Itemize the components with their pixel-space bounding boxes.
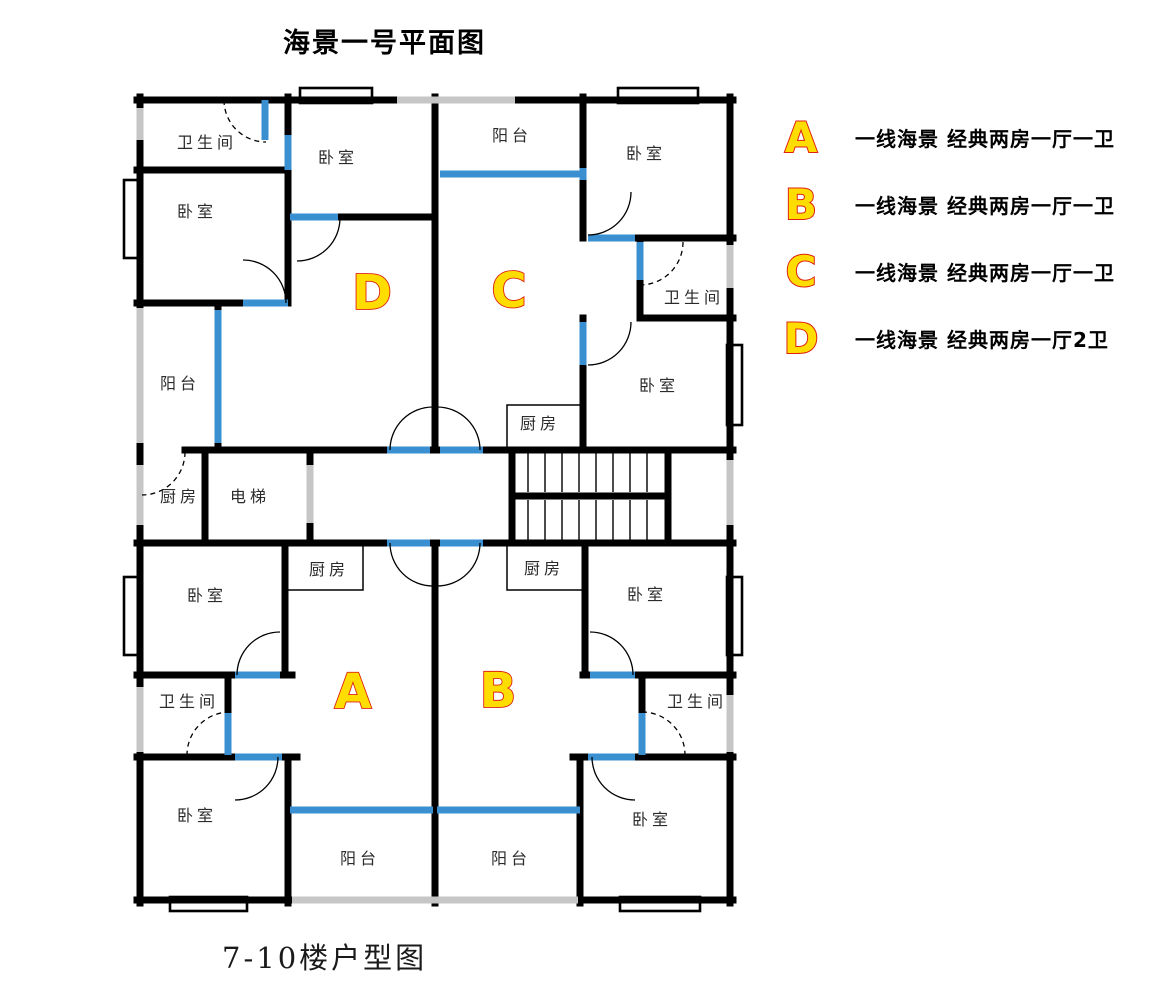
legend-letter-a: A: [785, 113, 818, 162]
door-arc: [437, 543, 480, 586]
legend-desc-d: 一线海景 经典两房一厅2卫: [855, 328, 1109, 352]
door-arc: [390, 407, 433, 450]
unit-letter-d: D: [352, 265, 392, 321]
door-arc: [437, 407, 480, 450]
legend-desc-a: 一线海景 经典两房一厅一卫: [855, 127, 1115, 151]
footer-caption: 7-10楼户型图: [222, 941, 427, 975]
room-label-d-bathroom: 卫生间: [177, 133, 237, 152]
room-label-a-bedroom-2: 卧室: [177, 806, 217, 825]
room-label-d-kitchen: 厨房: [160, 487, 200, 506]
room-label-c-balcony: 阳台: [492, 126, 532, 145]
room-label-b-bedroom-1: 卧室: [627, 585, 667, 604]
room-label-d-balcony: 阳台: [160, 374, 200, 393]
legend-letter-c: C: [786, 247, 817, 296]
room-label-elevator: 电梯: [230, 487, 270, 506]
door-arc: [588, 322, 631, 365]
floor-plan-page: 海景一号平面图: [0, 0, 1158, 992]
door-arc: [640, 242, 683, 285]
room-label-b-balcony: 阳台: [491, 849, 531, 868]
room-label-a-bedroom-1: 卧室: [187, 586, 227, 605]
room-label-c-bedroom-1: 卧室: [626, 144, 666, 163]
door-arc: [590, 632, 633, 675]
page-title: 海景一号平面图: [283, 28, 486, 59]
floor-plan-canvas: 海景一号平面图: [0, 0, 1158, 992]
room-label-b-bathroom: 卫生间: [667, 692, 727, 711]
room-label-a-bathroom: 卫生间: [159, 692, 219, 711]
unit-letter-b: B: [480, 663, 517, 719]
room-label-b-bedroom-2: 卧室: [632, 810, 672, 829]
room-label-d-bedroom-1: 卧室: [177, 202, 217, 221]
unit-letter-c: C: [491, 263, 526, 319]
room-label-b-kitchen: 厨房: [524, 559, 564, 578]
legend-desc-b: 一线海景 经典两房一厅一卫: [855, 194, 1115, 218]
door-arc: [237, 632, 280, 675]
unit-letters: A B C D: [334, 263, 526, 720]
door-arc: [390, 543, 433, 586]
door-arc: [187, 712, 230, 755]
unit-letter-a: A: [334, 664, 371, 720]
room-label-c-bathroom: 卫生间: [664, 288, 724, 307]
door-arc: [592, 757, 635, 800]
legend-letter-d: D: [784, 314, 819, 363]
legend: A 一线海景 经典两房一厅一卫 B 一线海景 经典两房一厅一卫 C 一线海景 经…: [784, 113, 1115, 363]
walls: [137, 97, 733, 903]
door-arc: [642, 712, 685, 755]
door-arc: [243, 260, 286, 303]
legend-desc-c: 一线海景 经典两房一厅一卫: [855, 261, 1115, 285]
interior-walls: [137, 97, 733, 903]
room-label-d-bedroom-2: 卧室: [318, 148, 358, 167]
room-label-a-balcony: 阳台: [340, 849, 380, 868]
door-arc: [588, 192, 631, 235]
legend-letter-b: B: [785, 180, 817, 229]
room-label-c-kitchen: 厨房: [520, 414, 560, 433]
door-arc: [297, 218, 340, 261]
room-label-a-kitchen: 厨房: [309, 560, 349, 579]
door-arc: [235, 757, 278, 800]
room-label-c-bedroom-2: 卧室: [639, 376, 679, 395]
